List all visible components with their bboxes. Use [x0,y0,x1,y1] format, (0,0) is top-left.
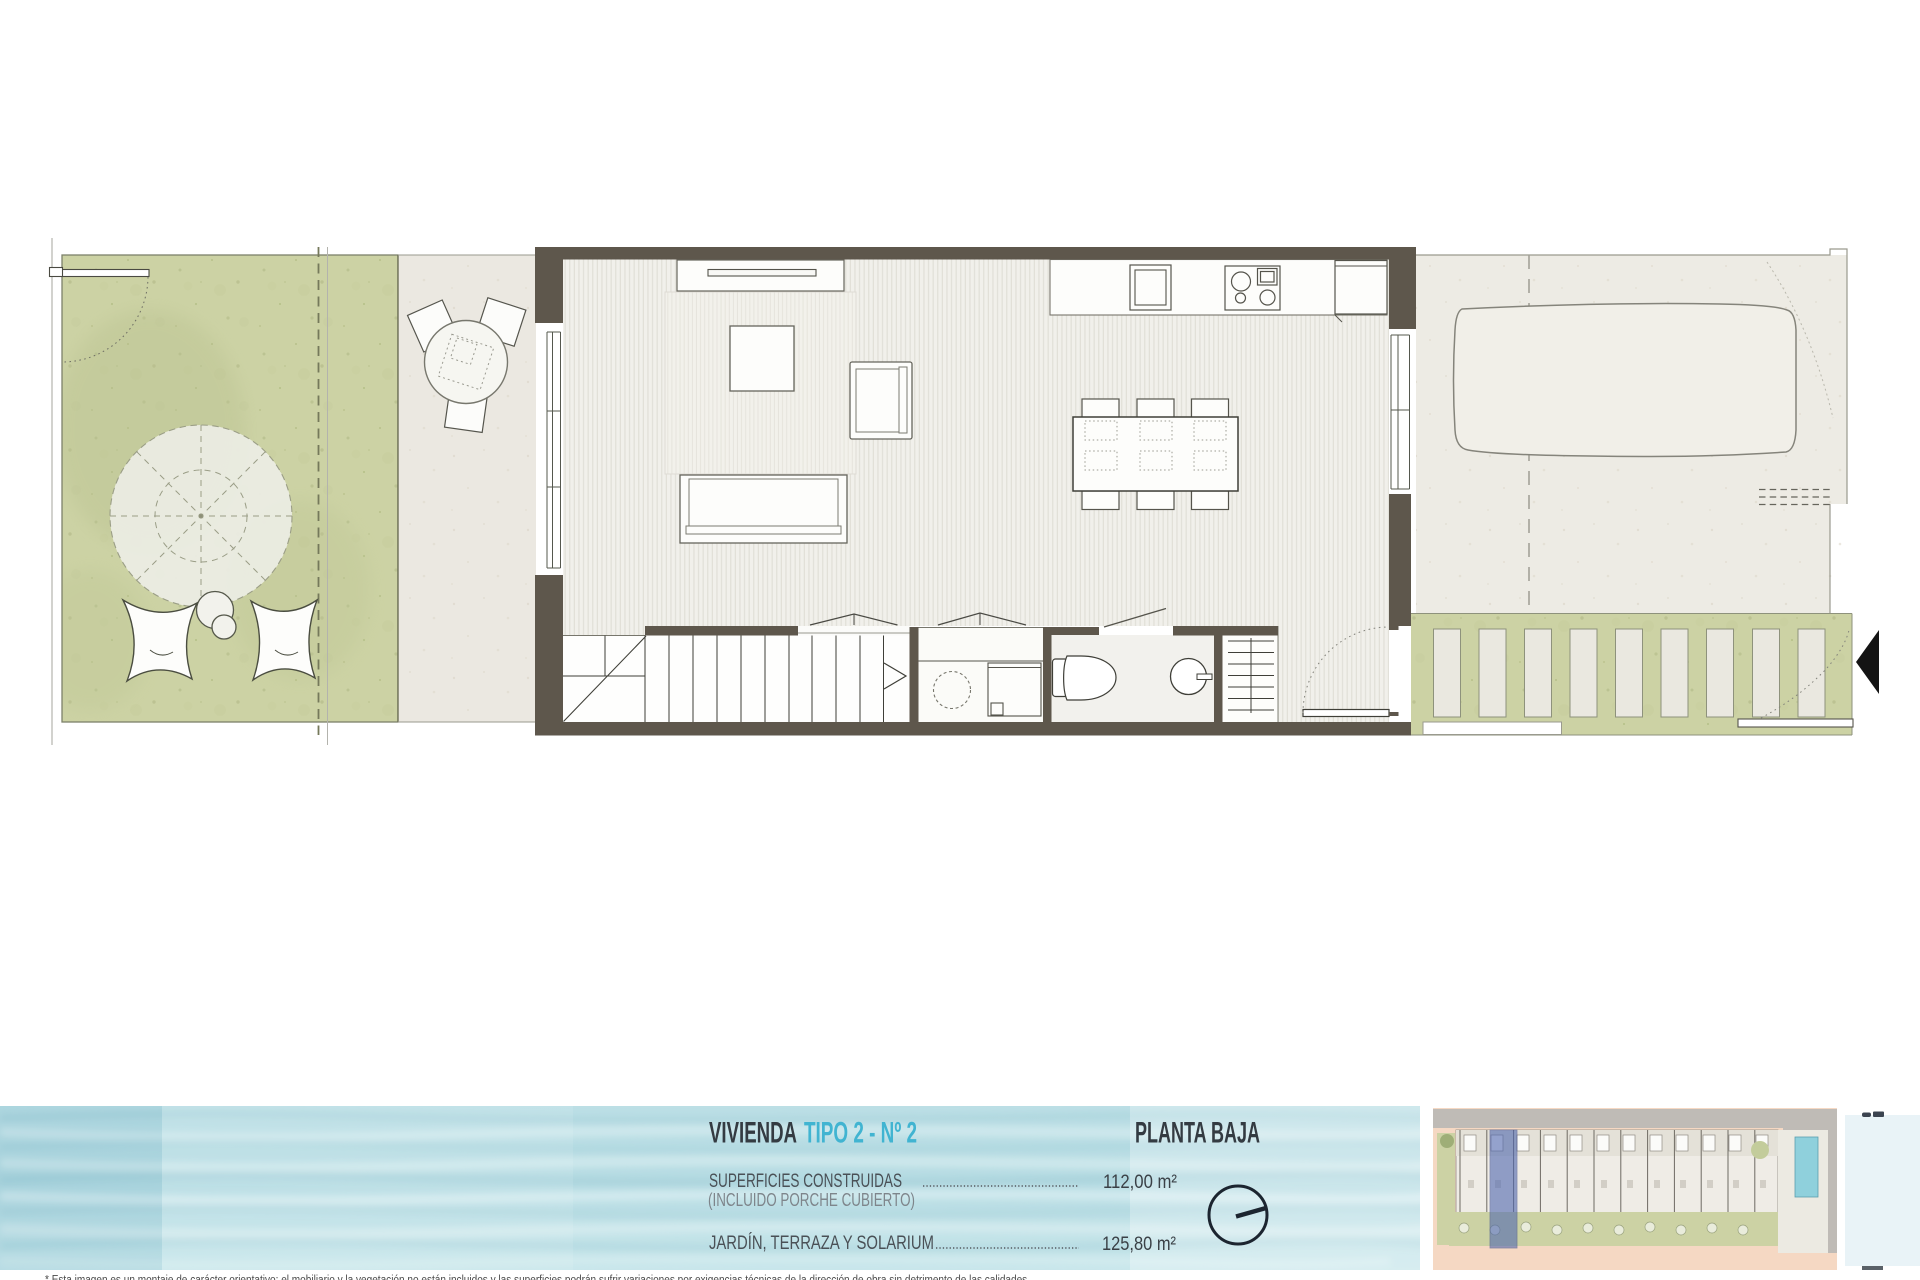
svg-text:(INCLUIDO PORCHE CUBIERTO): (INCLUIDO PORCHE CUBIERTO) [708,1190,915,1210]
svg-text:PLANTA BAJA: PLANTA BAJA [1135,1117,1260,1150]
svg-text:* Esta imagen es un montaje de: * Esta imagen es un montaje de carácter … [45,1275,1030,1280]
svg-text:SUPERFICIES CONSTRUIDAS: SUPERFICIES CONSTRUIDAS [709,1171,902,1192]
svg-text:VIVIENDA: VIVIENDA [709,1117,797,1150]
svg-text:TIPO 2 - Nº 2: TIPO 2 - Nº 2 [804,1117,917,1150]
svg-text:112,00 m²: 112,00 m² [1103,1172,1177,1193]
svg-text:125,80 m²: 125,80 m² [1102,1234,1176,1255]
svg-text:JARDÍN, TERRAZA Y SOLARIUM: JARDÍN, TERRAZA Y SOLARIUM [709,1233,934,1254]
